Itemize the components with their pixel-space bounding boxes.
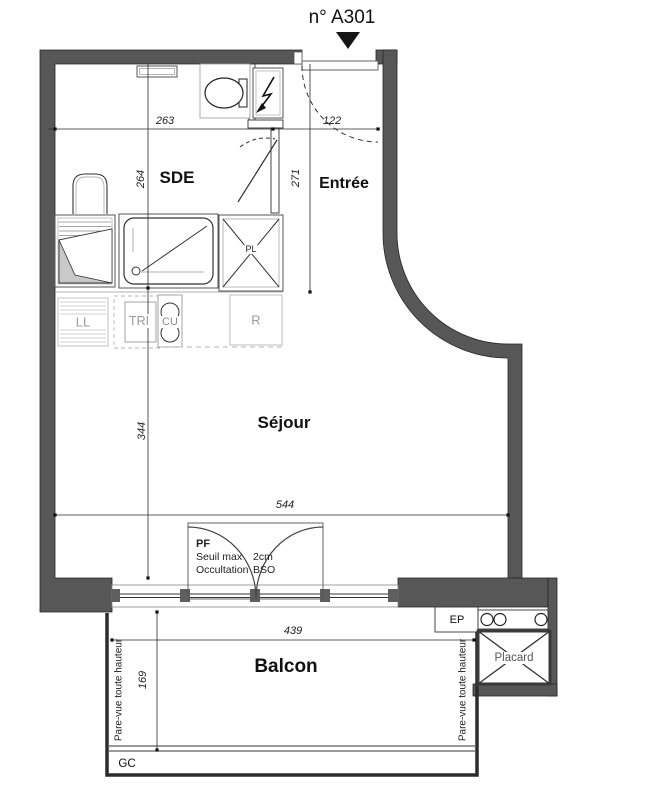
dim-entree-height: 271 [290,169,302,187]
washbasin [73,174,107,214]
dim-sejour-height: 344 [136,422,148,440]
dim-balcon-width: 439 [284,625,302,637]
kitchen-sink [55,215,115,287]
wall-bottom-right-block [398,578,548,607]
pare-vue-left-label: Pare-vue toute hauteur [114,639,125,741]
placard-vent-strip [478,610,548,629]
wall-placard-bottom [473,684,557,696]
seuil-value: 2cm [253,551,273,563]
fixture-label-pl: PL [244,244,257,254]
unit-number-label: n° A301 [309,7,376,29]
window-note-occultation: OccultationBSO [196,564,275,577]
entrance-threshold [302,61,378,70]
wall-vent [137,66,177,77]
dim-sejour-width: 544 [276,499,294,511]
window-note: PF Seuil max2cm OccultationBSO [196,538,275,577]
window-note-seuil: Seuil max2cm [196,551,275,564]
shower [119,214,218,288]
shower-drain [132,267,140,275]
toilet-bowl [205,78,243,108]
dim-sde-height: 264 [135,170,147,188]
toilet [200,64,250,118]
pare-vue-right-label: Pare-vue toute hauteur [458,639,469,741]
fixture-label-gc: GC [118,758,135,770]
occultation-value: BSO [253,564,275,576]
fixture-label-washing-machine: LL [74,315,92,330]
fixture-label-ep: EP [450,614,465,626]
partition-sde-vertical [271,128,279,213]
fixture-label-sorting: TRI [127,314,151,328]
floor-plan: n° A301 SDE Entrée Séjour Balcon 263 122… [0,0,645,800]
entrance-door-swing [302,66,378,142]
room-label-balcon: Balcon [254,656,317,678]
partition-sde-horizontal [248,120,283,128]
seuil-label: Seuil max [196,551,253,564]
dim-entree-width: 122 [323,115,341,127]
electrical-panel [253,68,283,118]
fixture-label-placard: Placard [494,652,535,664]
wall-right-curved [383,50,522,578]
window-note-type: PF [196,538,275,551]
dim-balcon-height: 169 [137,671,149,689]
sde-door-swing [240,138,275,147]
fixture-label-cooktop: CU [160,316,180,328]
room-label-sejour: Séjour [258,413,311,433]
room-label-sde: SDE [160,168,195,188]
dim-sde-width: 263 [156,115,174,127]
entrance-arrow-icon [336,32,360,49]
fixture-label-fridge: R [249,313,262,328]
room-label-entree: Entrée [319,175,369,193]
entrance-door-jamb [294,52,302,64]
occultation-label: Occultation [196,564,253,577]
